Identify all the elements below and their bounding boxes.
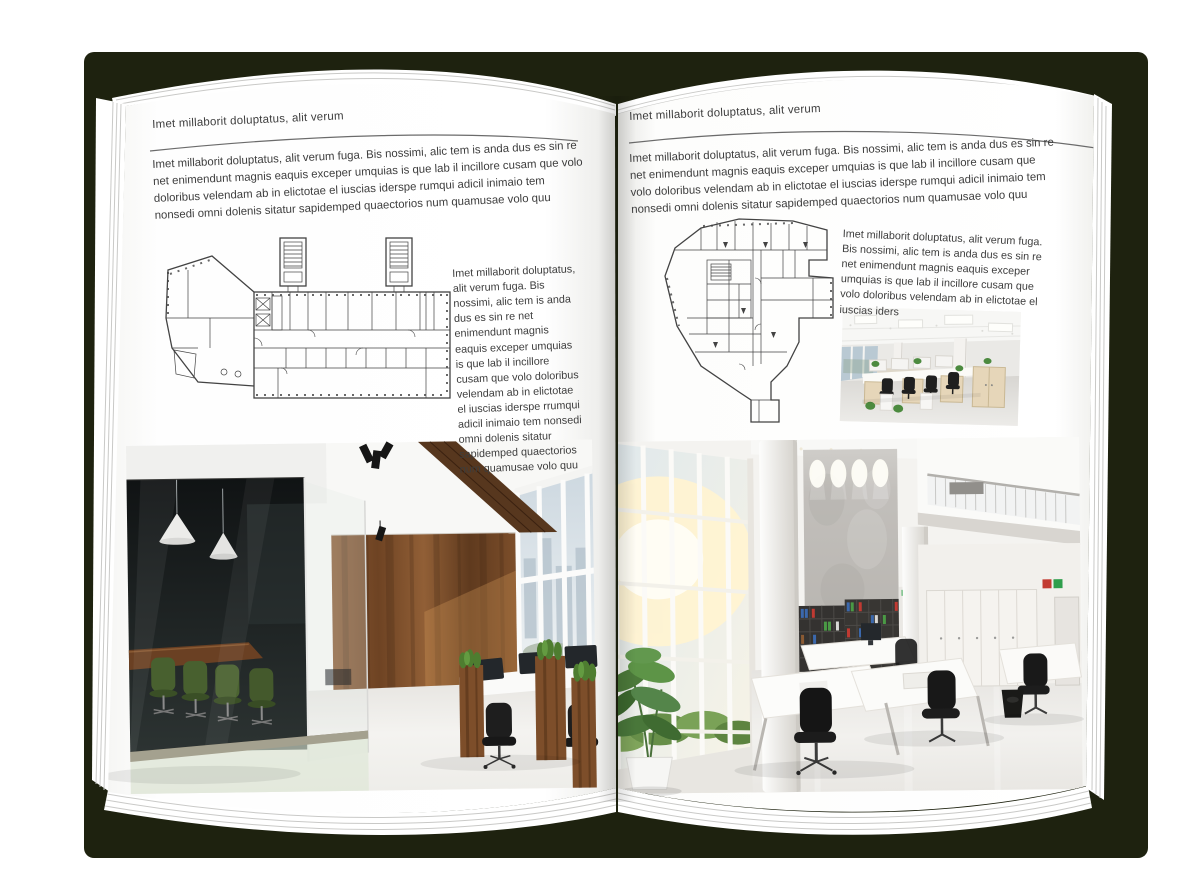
left-page-side-text: Imet millaborit doluptatus, alit verum f…: [452, 262, 584, 478]
right-office-photo-large: [562, 437, 1085, 797]
left-office-photo: [96, 439, 599, 795]
book-spread-illustration: [0, 0, 1200, 891]
glass-meeting-room: [126, 478, 308, 752]
brochure-mockup: Imet millaborit doluptatus, alit verum I…: [0, 0, 1200, 891]
right-page-side-text: Imet millaborit doluptatus, alit verum f…: [839, 227, 1043, 326]
right-office-photo-small: [840, 307, 1021, 426]
